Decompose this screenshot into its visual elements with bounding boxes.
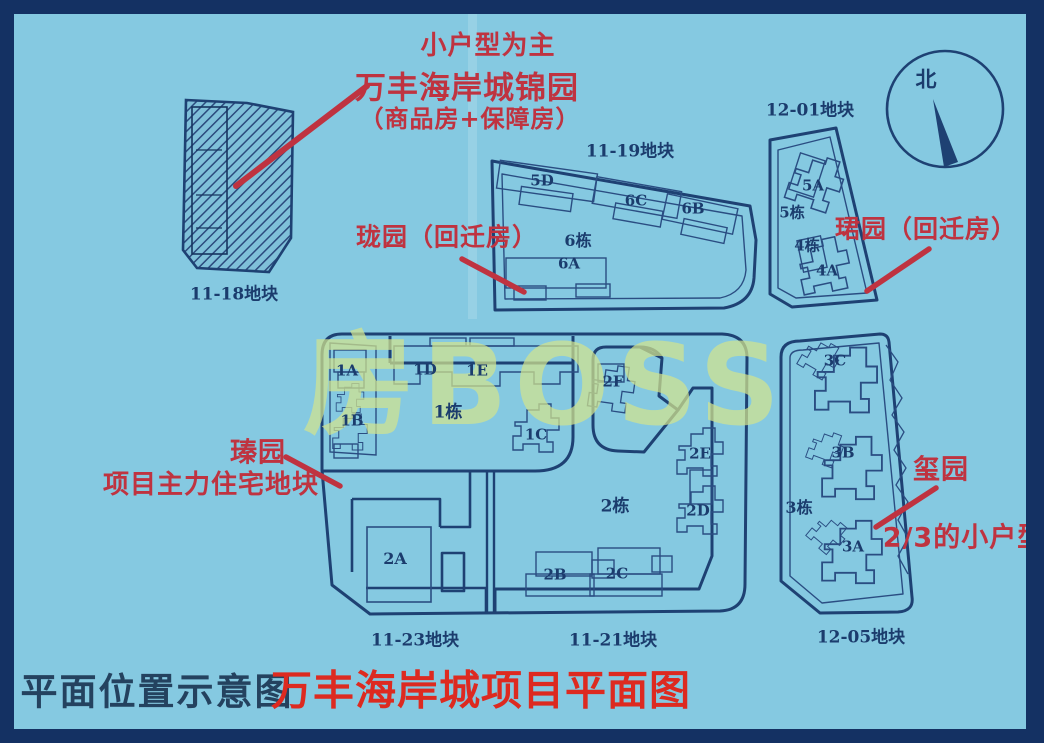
plot-label-11-18: 11-18地块 xyxy=(190,287,278,304)
building-label-6dong: 6栋 xyxy=(564,233,591,249)
building-label-5dong: 5栋 xyxy=(779,206,804,221)
annotation-junyuan: 珺园（回迁房） xyxy=(835,217,1017,242)
building-label-4dong: 4栋 xyxy=(794,239,819,254)
building-label-4a: 4A xyxy=(816,264,838,279)
building-label-1d: 1D xyxy=(413,363,436,378)
plot-label-11-19: 11-19地块 xyxy=(586,144,674,161)
building-label-3c: 3C xyxy=(824,354,846,369)
plot-label-12-05: 12-05地块 xyxy=(817,630,905,647)
plot-label-12-01: 12-01地块 xyxy=(766,103,854,120)
footer-left-title: 平面位置示意图 xyxy=(21,674,294,711)
building-label-6b: 6B xyxy=(681,202,704,217)
building-label-2a: 2A xyxy=(383,551,407,567)
annotation-xiyuan-desc: 2/3的小户型 xyxy=(883,525,1044,552)
building-label-3dong: 3栋 xyxy=(785,500,812,516)
annotation-jinyuan-line2: 万丰海岸城锦园 xyxy=(355,74,579,105)
building-label-2c: 2C xyxy=(606,567,628,582)
annotation-jinyuan-line3: （商品房+保障房） xyxy=(359,107,580,131)
plot-label-11-23: 11-23地块 xyxy=(371,633,459,650)
building-label-2e: 2E xyxy=(689,447,711,462)
annotation-jinyuan-line1: 小户型为主 xyxy=(420,33,555,59)
building-label-2f: 2F xyxy=(602,375,623,390)
annotation-zhenyuan-name: 瑧园 xyxy=(230,440,286,467)
building-label-1a: 1A xyxy=(336,364,358,379)
building-label-2b: 2B xyxy=(543,568,566,583)
building-label-6a: 6A xyxy=(558,257,580,272)
building-label-2d: 2D xyxy=(686,504,709,519)
site-plan-page: 房BOSS 小户型为主 万丰海岸城锦园 （商品房+保障房） 珑园（回迁房） 珺园… xyxy=(0,0,1044,743)
building-label-3a: 3A xyxy=(842,540,864,555)
building-label-5d: 5D xyxy=(530,174,553,189)
building-label-3b: 3B xyxy=(831,446,854,461)
footer-right-title: 万丰海岸城项目平面图 xyxy=(271,671,691,712)
building-label-5a: 5A xyxy=(802,179,824,194)
building-label-1e: 1E xyxy=(466,364,488,379)
building-label-1b: 1B xyxy=(340,414,363,429)
building-label-6c: 6C xyxy=(625,194,647,209)
annotation-longyuan: 珑园（回迁房） xyxy=(356,225,538,250)
annotation-zhenyuan-desc: 项目主力住宅地块 xyxy=(103,472,319,498)
building-label-2dong: 2栋 xyxy=(601,499,630,516)
annotation-xiyuan-name: 玺园 xyxy=(913,457,969,484)
plot-label-11-21: 11-21地块 xyxy=(569,633,657,650)
building-label-1dong: 1栋 xyxy=(434,405,463,422)
compass-north-label: 北 xyxy=(916,69,937,90)
building-label-1c: 1C xyxy=(525,428,547,443)
